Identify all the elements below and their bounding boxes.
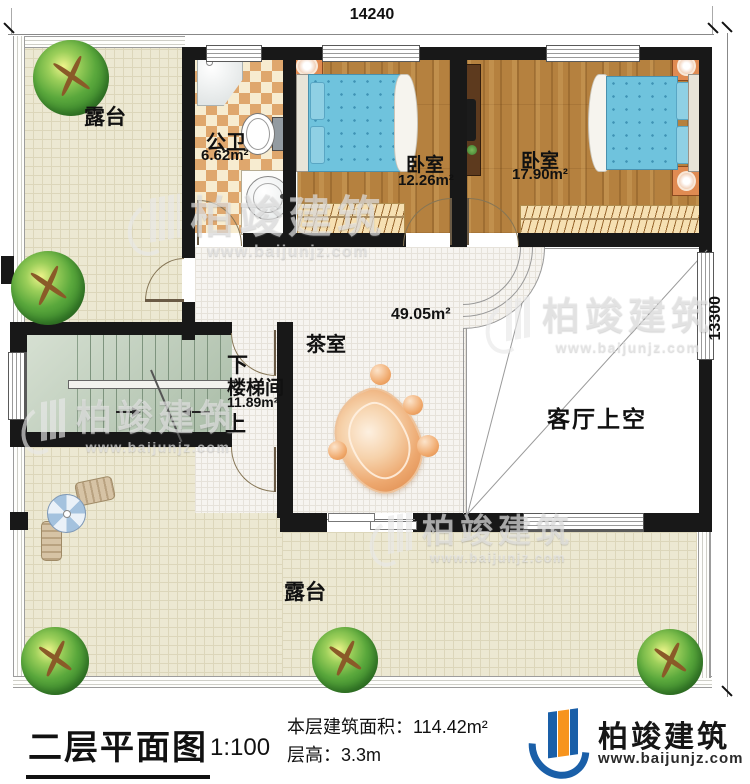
watermark: 柏竣建筑 www.baijunjz.com: [22, 400, 240, 455]
stair-door-leaf: [274, 330, 276, 375]
window: [546, 45, 640, 62]
terrace-railing: [13, 36, 185, 48]
bedroom-door-leaf: [450, 198, 452, 245]
drawing-scale: 1:100: [210, 734, 270, 762]
right-dimension-value: 13300: [707, 296, 725, 341]
watermark: 柏竣建筑 www.baijunjz.com: [486, 298, 714, 355]
pebble: [328, 441, 347, 460]
watermark-brand: 柏竣建筑: [422, 514, 574, 547]
pillow: [310, 126, 325, 164]
terrace-railing: [13, 447, 25, 676]
void-edge: [466, 327, 467, 514]
dimension-tick: [721, 21, 732, 32]
watermark-site: www.baijunjz.com: [76, 439, 240, 455]
terrace-top-label: 露台: [84, 101, 126, 131]
bedroom-left-area: 12.26m²: [398, 172, 454, 189]
wall: [277, 322, 293, 518]
stair-up-label: 上: [225, 408, 246, 438]
pillow: [310, 82, 325, 120]
bed: [588, 74, 699, 170]
watermark-logo-icon: [370, 514, 414, 564]
floor-plan: 柏竣建筑 www.baijunjz.com 柏竣建筑 www.baijunjz.…: [0, 0, 750, 784]
bathroom-area: 6.62m²: [201, 147, 249, 164]
terrace-door-leaf: [274, 447, 276, 492]
sliding-door-leaf: [328, 513, 375, 522]
bedroom-door-leaf: [467, 198, 469, 245]
bed: [296, 74, 416, 170]
wall: [450, 47, 467, 247]
watermark-brand: 柏竣建筑: [542, 298, 714, 336]
duvet: [606, 76, 678, 170]
terrace-door-leaf: [145, 299, 184, 302]
stair-handrail: [68, 380, 235, 389]
drawing-info: 本层建筑面积：114.42m² 层高：3.3m: [287, 714, 488, 770]
parasol: [47, 494, 86, 533]
window: [206, 45, 262, 62]
watermark-brand: 柏竣建筑: [190, 196, 386, 240]
terrace-bottom-label: 露台: [284, 576, 326, 606]
wall: [518, 233, 700, 247]
watermark-logo-icon: [22, 400, 68, 452]
void-edge: [545, 248, 699, 249]
wall: [280, 513, 327, 532]
void-edge: [463, 327, 464, 514]
watermark-logo-icon: [486, 298, 534, 352]
railing-pier: [10, 512, 28, 530]
tea-room-label: 茶室: [306, 328, 346, 357]
tree: [21, 627, 89, 695]
watermark-site: www.baijunjz.com: [542, 339, 714, 355]
watermark-site: www.baijunjz.com: [422, 550, 574, 565]
watermark-brand: 柏竣建筑: [76, 400, 240, 436]
tree: [11, 251, 85, 325]
watermark-site: www.baijunjz.com: [190, 243, 386, 261]
drawing-title: 二层平面图: [26, 720, 210, 779]
tree: [312, 627, 378, 693]
window: [322, 45, 420, 62]
tea-room-area: 49.05m²: [391, 306, 451, 324]
top-dimension-line: [8, 34, 714, 35]
company-logo-icon: [532, 708, 590, 772]
living-void-label: 客厅上空: [547, 400, 647, 434]
watermark: 柏竣建筑 www.baijunjz.com: [370, 514, 574, 565]
pebble: [403, 395, 423, 415]
dimension-tick: [3, 22, 14, 33]
bedroom-right-area: 17.90m²: [512, 166, 568, 183]
floor-height-line: 层高：3.3m: [287, 742, 488, 770]
pebble: [370, 364, 391, 385]
floor-area-line: 本层建筑面积：114.42m²: [287, 714, 488, 742]
wall: [642, 513, 700, 532]
watermark: 柏竣建筑 www.baijunjz.com: [128, 196, 386, 261]
plant: [467, 145, 477, 155]
company-website: www.baijunjz.com: [598, 750, 743, 767]
pebble: [417, 435, 439, 457]
right-dimension-line: [727, 33, 728, 697]
top-dimension-value: 14240: [342, 6, 402, 24]
tree: [637, 629, 703, 695]
watermark-logo-icon: [128, 196, 182, 254]
dimension-tick: [707, 22, 718, 33]
